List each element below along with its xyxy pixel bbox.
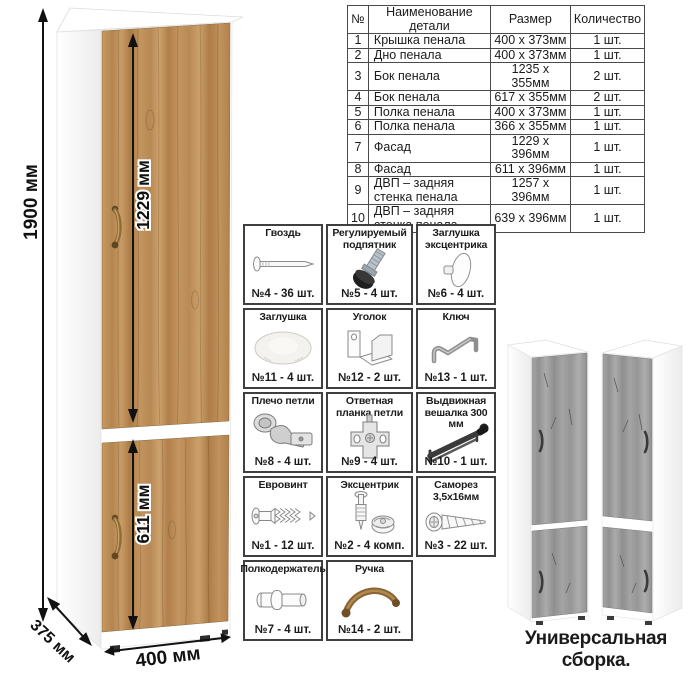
table-cell: 400 x 373мм (490, 105, 570, 120)
top-door-label: 1229 мм (133, 160, 153, 230)
table-cell: 4 (348, 91, 369, 106)
hardware-item: Ключ№13 - 1 шт. (416, 308, 496, 389)
parts-table-header: Количество (570, 6, 644, 34)
table-cell: 2 шт. (570, 91, 644, 106)
variant-cabinet-left (508, 340, 588, 625)
depth-label: 375 мм (27, 617, 79, 667)
hardware-item-name: Ручка (354, 562, 385, 576)
table-cell: 7 (348, 134, 369, 162)
hardware-item-name: Полкодержатель (239, 562, 326, 576)
pullout-rail-icon (418, 431, 494, 456)
parts-table-header: Наименование детали (368, 6, 490, 34)
hardware-item-qty: №9 - 4 шт. (341, 456, 397, 471)
parts-table-header: Размер (490, 6, 570, 34)
table-cell: Бок пенала (368, 63, 490, 91)
table-cell: 1 шт. (570, 120, 644, 135)
hardware-item: Уголок№12 - 2 шт. (326, 308, 413, 389)
parts-table: №Наименование деталиРазмерКоличество 1Кр… (347, 5, 645, 233)
hardware-item-name: Заглушка (258, 310, 307, 324)
hardware-item: Полкодержатель№7 - 4 шт. (243, 560, 323, 641)
nail-icon (245, 240, 321, 288)
table-row: 9ДВП – задняя стенка пенала1257 x 396мм1… (348, 177, 645, 205)
table-cell: 400 x 373мм (490, 48, 570, 63)
table-cell: Крышка пенала (368, 34, 490, 49)
table-cell: Дно пенала (368, 48, 490, 63)
hardware-item-qty: №4 - 36 шт. (252, 288, 315, 303)
bottom-door-label: 611 мм (133, 485, 153, 544)
hardware-item-qty: №7 - 4 шт. (255, 624, 311, 639)
variant-cabinet-right (602, 340, 682, 625)
table-cell: 366 x 355мм (490, 120, 570, 135)
table-cell: 1257 x 396мм (490, 177, 570, 205)
table-row: 5Полка пенала400 x 373мм1 шт. (348, 105, 645, 120)
table-cell: 1 (348, 34, 369, 49)
hardware-item-qty: №3 - 22 шт. (425, 540, 488, 555)
hardware-item: Регулируемый подпятник№5 - 4 шт. (326, 224, 413, 305)
hardware-item-name: Евровинт (257, 478, 308, 492)
assembly-sheet: 1900 мм 1229 мм 611 мм 375 мм (0, 0, 700, 683)
confirmat-screw-icon (245, 492, 321, 540)
hardware-item-name: Уголок (352, 310, 388, 324)
hardware-item-name: Саморез 3,5х16мм (418, 478, 494, 503)
hardware-item: Эксцентрик№2 - 4 комп. (326, 476, 413, 557)
universal-assembly-diagram (492, 333, 700, 633)
parts-table-body: 1Крышка пенала400 x 373мм1 шт.2Дно пенал… (348, 34, 645, 233)
shelf-pin-icon (245, 576, 321, 624)
hardware-item: Ответная планка петли№9 - 4 шт. (326, 392, 413, 473)
hardware-item-qty: №13 - 1 шт. (425, 372, 488, 387)
table-row: 3Бок пенала1235 x 355мм2 шт. (348, 63, 645, 91)
table-cell: Полка пенала (368, 120, 490, 135)
table-cell: 1 шт. (570, 205, 644, 233)
table-cell: 8 (348, 162, 369, 177)
table-row: 1Крышка пенала400 x 373мм1 шт. (348, 34, 645, 49)
hardware-item: Выдвижная вешалка 300 мм№10 - 1 шт. (416, 392, 496, 473)
parts-table-header-row: №Наименование деталиРазмерКоличество (348, 6, 645, 34)
cabinet-body (57, 8, 243, 653)
table-row: 4Бок пенала617 x 355мм2 шт. (348, 91, 645, 106)
hardware-item-qty: №12 - 2 шт. (338, 372, 401, 387)
table-cell: 5 (348, 105, 369, 120)
cabinet-side-panel (57, 30, 101, 648)
table-cell: 1235 x 355мм (490, 63, 570, 91)
hex-key-icon (418, 324, 494, 372)
table-cell: ДВП – задняя стенка пенала (368, 177, 490, 205)
hardware-item-qty: №6 - 4 шт. (428, 288, 484, 303)
hinge-arm-icon (245, 408, 321, 456)
table-cell: 1 шт. (570, 162, 644, 177)
hardware-item-name: Плечо петли (250, 394, 315, 408)
parts-table-header: № (348, 6, 369, 34)
hardware-item-name: Гвоздь (264, 226, 301, 240)
cover-cap-icon (245, 324, 321, 372)
total-height-label: 1900 мм (21, 164, 42, 240)
hardware-item-qty: №8 - 4 шт. (255, 456, 311, 471)
dimension-total-height: 1900 мм (21, 8, 48, 622)
table-row: 7Фасад1229 x 396мм1 шт. (348, 134, 645, 162)
handle-icon (328, 576, 411, 624)
table-cell: 639 x 396мм (490, 205, 570, 233)
hardware-item-name: Ключ (442, 310, 471, 324)
corner-bracket-icon (328, 324, 411, 372)
cam-lock-icon (328, 492, 411, 540)
table-cell: 9 (348, 177, 369, 205)
hardware-item: Заглушка№11 - 4 шт. (243, 308, 323, 389)
table-cell: Фасад (368, 162, 490, 177)
table-row: 8Фасад611 x 396мм1 шт. (348, 162, 645, 177)
right-variant-top-door (603, 354, 652, 521)
table-cell: 6 (348, 120, 369, 135)
table-cell: Фасад (368, 134, 490, 162)
table-row: 6Полка пенала366 x 355мм1 шт. (348, 120, 645, 135)
cam-cap-icon (418, 251, 494, 288)
table-cell: Бок пенала (368, 91, 490, 106)
table-cell: 400 x 373мм (490, 34, 570, 49)
hardware-item-qty: №5 - 4 шт. (341, 288, 397, 303)
hardware-item: Заглушка эксцентрика№6 - 4 шт. (416, 224, 496, 305)
table-cell: 2 шт. (570, 63, 644, 91)
hardware-item: Саморез 3,5х16мм№3 - 22 шт. (416, 476, 496, 557)
table-cell: 1 шт. (570, 105, 644, 120)
table-cell: 611 x 396мм (490, 162, 570, 177)
table-cell: 1 шт. (570, 177, 644, 205)
table-cell: 2 (348, 48, 369, 63)
hardware-item: Ручка№14 - 2 шт. (326, 560, 413, 641)
table-cell: 3 (348, 63, 369, 91)
table-cell: Полка пенала (368, 105, 490, 120)
universal-assembly-caption: Универсальная сборка. (492, 628, 700, 672)
hardware-item: Гвоздь№4 - 36 шт. (243, 224, 323, 305)
hardware-item-qty: №14 - 2 шт. (338, 624, 401, 639)
hardware-item-qty: №2 - 4 комп. (334, 540, 404, 555)
hardware-item: Плечо петли№8 - 4 шт. (243, 392, 323, 473)
hardware-grid: Гвоздь№4 - 36 шт.Регулируемый подпятник№… (243, 224, 496, 641)
table-cell: 1 шт. (570, 34, 644, 49)
hardware-item-qty: №10 - 1 шт. (425, 456, 488, 471)
adjustable-foot-icon (328, 251, 411, 288)
hardware-item: Евровинт№1 - 12 шт. (243, 476, 323, 557)
table-cell: 1 шт. (570, 134, 644, 162)
left-variant-top-door (532, 353, 587, 525)
cabinet-diagram: 1900 мм 1229 мм 611 мм 375 мм (0, 0, 250, 683)
table-cell: 1 шт. (570, 48, 644, 63)
hardware-item-qty: №1 - 12 шт. (252, 540, 315, 555)
table-cell: 617 x 355мм (490, 91, 570, 106)
self-tapping-screw-icon (418, 503, 494, 540)
table-cell: 1229 x 396мм (490, 134, 570, 162)
hinge-plate-icon (328, 419, 411, 456)
hardware-item-qty: №11 - 4 шт. (252, 372, 314, 387)
table-row: 2Дно пенала400 x 373мм1 шт. (348, 48, 645, 63)
